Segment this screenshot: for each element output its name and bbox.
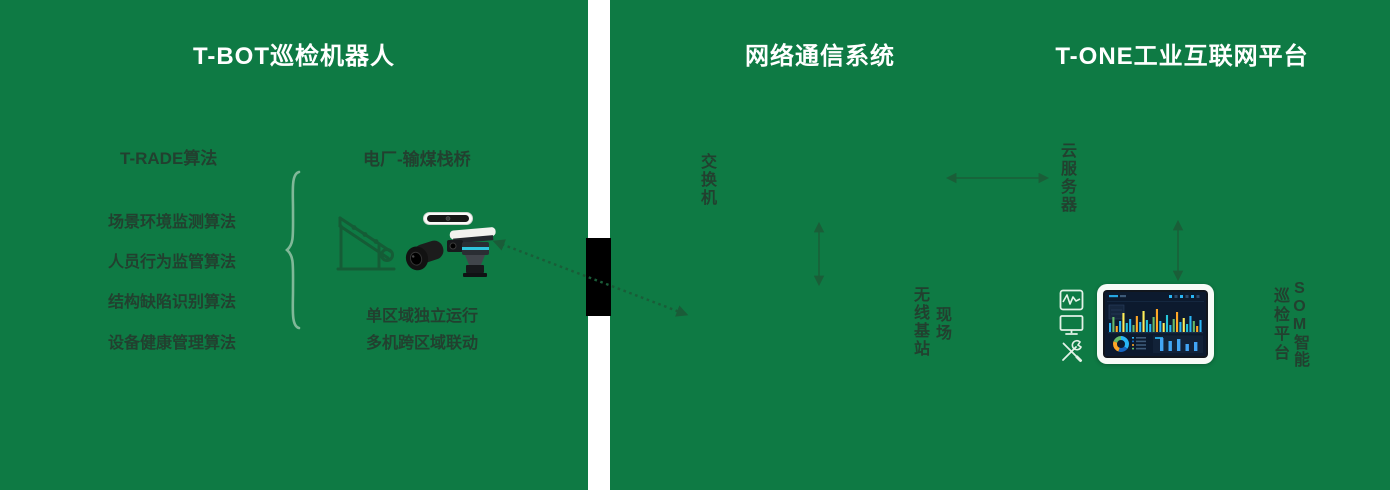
ptz-camera-device xyxy=(402,235,446,273)
waveform-monitor-icon xyxy=(1059,289,1084,311)
algorithm-item: 人员行为监管算法 xyxy=(108,248,236,272)
dashboard-screen xyxy=(1105,292,1206,356)
cloud-server-label: 云服务器 xyxy=(1057,142,1075,214)
platform-section-title: T-ONE工业互联网平台 xyxy=(1055,36,1308,71)
som-platform-label-right: SOM智能 xyxy=(1290,280,1308,368)
architecture-diagram: T-BOT巡检机器人 网络通信系统 T-ONE工业互联网平台 T-RADE算法 … xyxy=(0,0,1390,490)
rail-robot-device xyxy=(444,225,498,279)
algorithm-item: 设备健康管理算法 xyxy=(108,329,236,353)
site-label: 现场 xyxy=(932,306,950,342)
network-section-title: 网络通信系统 xyxy=(745,36,895,71)
tablet-device xyxy=(1097,284,1214,364)
sensor-bar-device xyxy=(423,212,473,225)
base-station-label: 无线基站 xyxy=(910,286,928,358)
mode-line: 单区域独立运行 xyxy=(366,302,478,326)
tablet-bezel xyxy=(1103,290,1208,358)
algorithm-item: 场景环境监测算法 xyxy=(108,208,236,232)
algorithms-heading: T-RADE算法 xyxy=(120,144,217,169)
maintenance-tools-icon xyxy=(1059,339,1084,363)
algorithm-item: 结构缺陷识别算法 xyxy=(108,288,236,312)
platform-icon-stack xyxy=(1059,289,1085,363)
mode-line: 多机跨区域联动 xyxy=(366,329,478,353)
display-screen-icon xyxy=(1059,314,1084,336)
network-platform-panel xyxy=(610,0,1390,490)
robot-section-title: T-BOT巡检机器人 xyxy=(193,36,395,71)
panel-connector-block xyxy=(586,238,611,316)
brace-icon xyxy=(284,170,302,330)
conveyor-bridge-icon xyxy=(334,211,398,273)
scene-label: 电厂-输煤栈桥 xyxy=(363,145,471,170)
som-platform-label-left: 巡检平台 xyxy=(1270,287,1288,363)
switch-label: 交换机 xyxy=(697,153,715,207)
